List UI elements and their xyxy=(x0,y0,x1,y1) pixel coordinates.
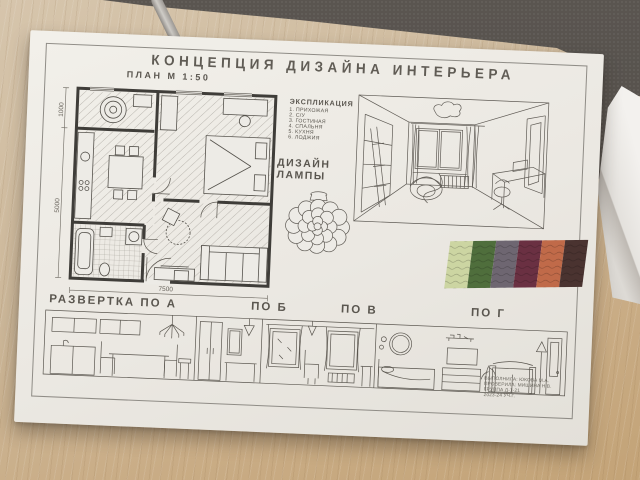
dim-left-bottom: 5000 xyxy=(54,198,62,213)
floor-plan-svg: 1000 5000 7500 xyxy=(47,77,293,312)
photo-scene: КОНЦЕПЦИЯ ДИЗАЙНА ИНТЕРЬЕРА ПЛАН М 1:50 xyxy=(0,0,640,480)
perspective-view-svg xyxy=(353,94,550,230)
fabric-swatches xyxy=(444,240,588,289)
perspective-room xyxy=(354,95,549,229)
elevation-label-g: ПО Г xyxy=(471,307,506,320)
lamp-design-label: ДИЗАЙН ЛАМПЫ xyxy=(276,157,330,183)
fabric-swatches-svg xyxy=(438,233,590,295)
elevation-label-b: ПО Б xyxy=(251,301,288,315)
elevation-label-v: ПО В xyxy=(341,303,378,317)
lamp-sketch xyxy=(284,190,351,254)
title-block: ВЫПОЛНИЛА: ЮКОВА М.А. ПРОВЕРИЛА: МИШИНА … xyxy=(483,375,564,400)
drawing-board: КОНЦЕПЦИЯ ДИЗАЙНА ИНТЕРЬЕРА ПЛАН М 1:50 xyxy=(14,30,604,446)
dim-bottom: 7500 xyxy=(158,286,173,294)
lamp-sketch-svg xyxy=(271,186,364,260)
dim-left-top: 1000 xyxy=(58,102,66,117)
lamp-label-line2: ЛАМПЫ xyxy=(276,169,330,183)
